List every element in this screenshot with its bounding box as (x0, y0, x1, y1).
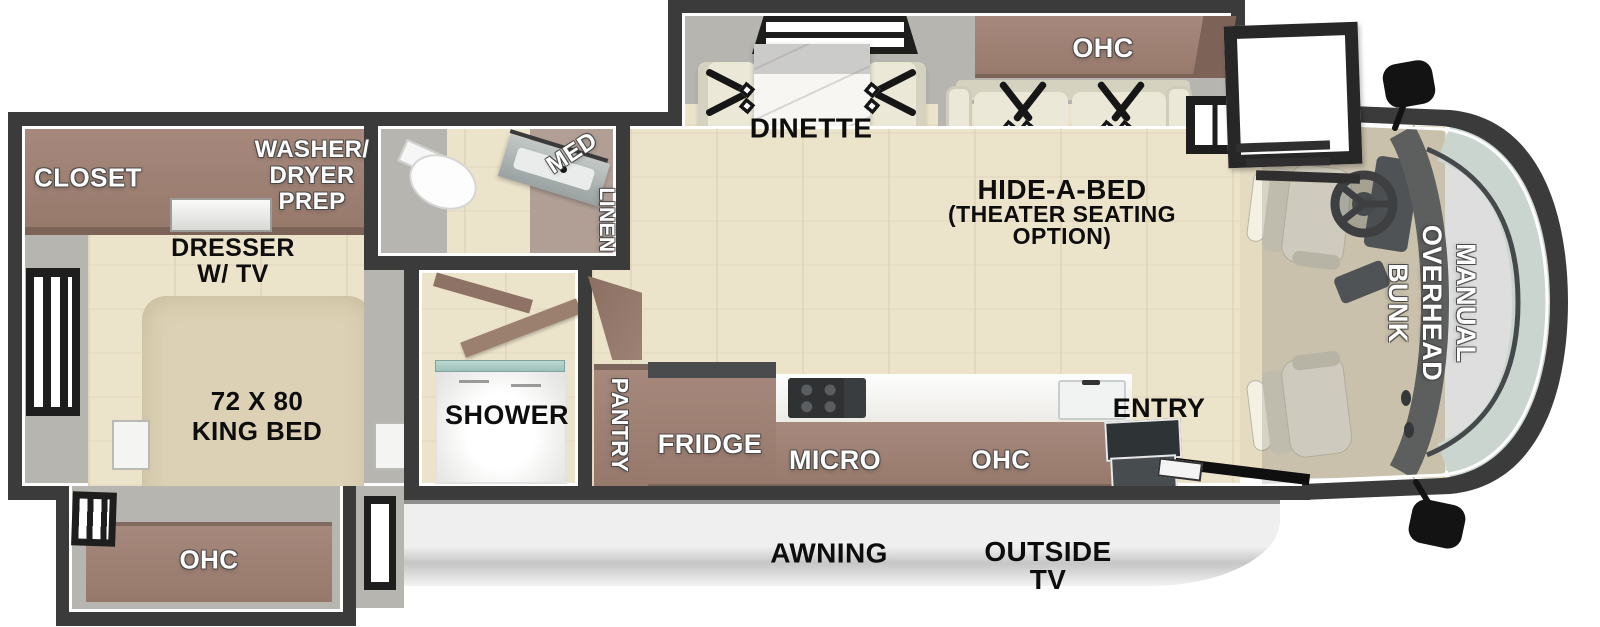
label-wdp-line2: DRYER (255, 163, 370, 189)
bed-slideout-bottom-wall (56, 612, 356, 626)
label-kitchen-ohc: OHC (972, 446, 1031, 473)
label-living-ohc-text: OHC (1072, 34, 1133, 62)
label-overhead-bunk: MANUAL OVERHEAD BUNK (1381, 183, 1483, 423)
roof-wall-left (8, 112, 682, 126)
entry-steps (1104, 418, 1182, 492)
label-wdp-line3: PREP (255, 189, 370, 215)
shower-right-wall (578, 270, 592, 486)
label-outside-line1: OUTSIDE (984, 538, 1111, 566)
label-pantry-text: PANTRY (608, 378, 632, 472)
label-bedroom-ohc-text: OHC (180, 546, 239, 573)
label-fridge: FRIDGE (658, 430, 762, 458)
label-dresser: DRESSER W/ TV (171, 235, 295, 287)
bed-slideout-window-left-pane (78, 498, 109, 539)
label-entry: ENTRY (1113, 394, 1206, 422)
label-hab-line3: OPTION) (948, 225, 1176, 247)
label-king-bed: 72 X 80 KING BED (192, 386, 322, 446)
label-bedroom-ohc: OHC (180, 546, 239, 573)
bed-slideout-window-left (71, 491, 117, 547)
bedroom-window (26, 268, 80, 416)
label-hide-a-bed: HIDE-A-BED (THEATER SEATING OPTION) (948, 177, 1176, 247)
shower-handle-right (511, 384, 541, 387)
label-dinette: DINETTE (750, 113, 873, 142)
label-wdp-line1: WASHER/ (255, 137, 370, 163)
label-closet-text: CLOSET (34, 164, 142, 191)
label-micro: MICRO (789, 446, 881, 474)
label-shower: SHOWER (445, 401, 569, 429)
slideout-left-wall (668, 0, 682, 126)
window-sill-bar (1246, 157, 1330, 166)
label-outside-tv: OUTSIDE TV (984, 538, 1111, 594)
label-hab-line2: (THEATER SEATING (948, 203, 1176, 225)
hall-door-1 (433, 272, 533, 313)
bathroom-bottom-wall (364, 256, 630, 270)
label-pantry: PANTRY (608, 378, 632, 472)
side-mirror-bottom (1406, 497, 1468, 551)
label-bunk-line2: OVERHEAD (1415, 183, 1449, 423)
label-micro-text: MICRO (789, 446, 881, 474)
label-dresser-line2: W/ TV (171, 261, 295, 287)
label-linen-text: LINEN (595, 188, 617, 253)
rv-floorplan: CLOSET WASHER/ DRYER PREP DRESSER W/ TV … (0, 0, 1600, 627)
bed-slideout-right-wall (343, 486, 356, 626)
cooktop (788, 378, 866, 418)
label-awning-text: AWNING (770, 538, 888, 567)
label-bunk-line1: MANUAL (1449, 183, 1483, 423)
rear-wall (8, 112, 22, 500)
shower-handle-left (459, 380, 489, 383)
bathroom-right-wall (616, 112, 630, 270)
label-king-line1: 72 X 80 (192, 386, 322, 416)
kitchen-faucet (1082, 380, 1100, 385)
nightstand-left (112, 420, 150, 470)
label-entry-text: ENTRY (1113, 394, 1206, 422)
label-closet: CLOSET (34, 164, 142, 191)
label-kitchen-ohc-text: OHC (972, 446, 1031, 473)
bedroom-hall-wall (404, 270, 419, 486)
label-dresser-line1: DRESSER (171, 235, 295, 261)
label-linen: LINEN (595, 188, 617, 253)
label-outside-line2: TV (984, 566, 1111, 594)
label-bunk-line3: BUNK (1381, 183, 1415, 423)
label-shower-text: SHOWER (445, 401, 569, 429)
label-awning: AWNING (770, 538, 888, 567)
bedroom-window-pane (34, 277, 72, 407)
label-washer-dryer-prep: WASHER/ DRYER PREP (255, 137, 370, 215)
bed-slideout-window-right-pane (371, 504, 389, 582)
hall-interior (419, 270, 578, 486)
slideout-top-wall (668, 0, 1245, 13)
shower-glass (435, 360, 565, 372)
bed-slideout-left-wall (56, 486, 69, 626)
fridge (648, 362, 776, 488)
label-hab-line1: HIDE-A-BED (948, 177, 1176, 203)
fridge-top-vent (648, 362, 776, 378)
side-mirror-top (1381, 58, 1438, 110)
label-fridge-text: FRIDGE (658, 430, 762, 458)
label-king-line2: KING BED (192, 416, 322, 446)
bed-slideout-end-block (356, 486, 404, 608)
label-living-ohc: OHC (1072, 34, 1133, 62)
side-mirror-top-arm (1395, 104, 1404, 128)
bottom-wall (343, 486, 1310, 500)
bed-slideout-window-right (364, 496, 396, 590)
label-dinette-text: DINETTE (750, 113, 873, 142)
